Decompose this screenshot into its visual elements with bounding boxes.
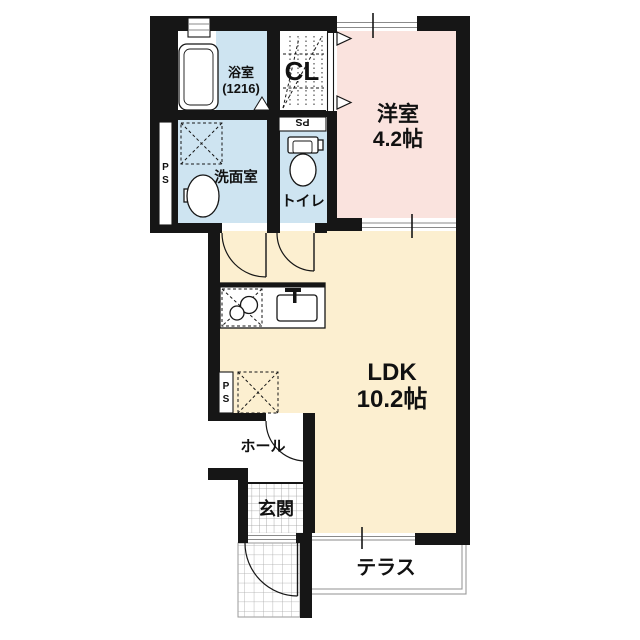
floor-plan-page: P S PS P S 浴室 (1216) CL 洗面室 トイレ 洋室 4.2帖 … [0,0,640,640]
wall-closet-bottom [280,110,327,117]
floor-plan: P S PS P S 浴室 (1216) CL 洗面室 トイレ 洋室 4.2帖 … [0,0,640,640]
wall-bath-closet [267,16,280,233]
wall-bottom-c [415,533,470,545]
ldk-label: LDK [367,359,417,386]
entry-porch-tiles [238,543,300,617]
ps-label: S [223,394,230,405]
wall-hall-genkan-cap [208,468,248,480]
wall-sanitary-bottom-c [315,223,327,233]
ps-label-rotated: PS [295,116,309,128]
wall-hall-top-a [208,413,266,421]
wall-sanitary-bottom-b [267,223,277,233]
western-room-label: 洋室 [377,102,419,126]
bath-size-label: (1216) [222,81,260,96]
wall-porch-right [300,533,312,618]
wall-ldk-left [208,223,220,414]
wall-western-ldk [327,218,362,231]
bath-louver-window [188,18,210,37]
pipe-space-left: P S [159,122,172,225]
kitchen-counter [220,283,325,328]
wall-right [456,16,470,545]
pipe-space-toilet: PS [279,116,326,131]
bathtub [179,44,218,110]
entrance-label: 玄関 [258,498,294,519]
western-room-size-label: 4.2帖 [373,128,423,151]
ps-label: P [162,162,169,173]
ps-label: S [162,175,169,186]
hall-label: ホール [240,438,285,455]
bath-label: 浴室 [228,65,254,80]
toilet-label: トイレ [281,194,325,210]
washroom-label: 洗面室 [214,168,258,186]
terrace-label: テラス [356,557,416,579]
closet-label: CL [285,56,320,86]
ps-label: P [223,381,230,392]
pipe-space-ldk: P S [219,372,233,413]
wall-bottom-a [238,533,248,543]
entry-door-frame [248,536,296,540]
wall-bath-washroom [172,110,267,120]
ldk-size-label: 10.2帖 [357,386,428,413]
